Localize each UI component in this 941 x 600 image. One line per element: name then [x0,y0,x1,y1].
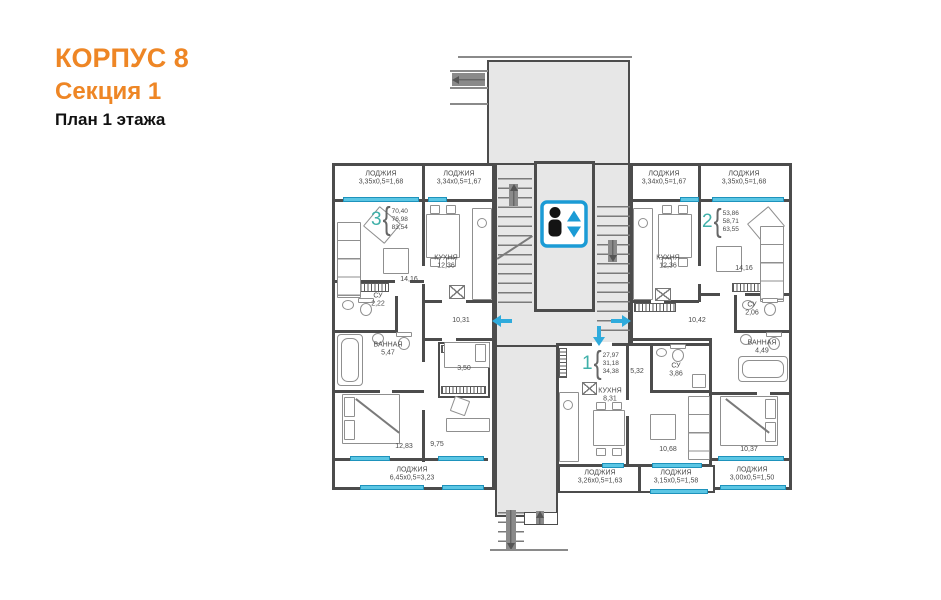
chair [662,205,672,214]
label-apt3-loggia-kitchen: ЛОДЖИЯ3,34х0,5=1,67 [437,171,482,188]
chair [612,448,622,456]
label-apt3-closet: 3,50 [457,365,471,373]
label-apt2-bath: ВАННАЯ4,49 [748,340,777,357]
window [442,485,484,490]
sofa [688,396,710,460]
label-apt1-loggia-living: ЛОДЖИЯ3,15х0,5=1,58 [654,470,699,487]
elevator-person-body [549,220,562,237]
sofa [337,222,361,298]
wall [626,345,629,400]
wall [422,302,425,362]
label-apt3-hall: 10,31 [452,317,470,325]
label-apt3-room: 9,75 [430,441,444,449]
window [650,489,708,494]
label-apt1-wc: СУ3,86 [669,363,683,380]
window [720,485,786,490]
brace-glyph [714,203,722,241]
apartment-areas: 27,97 31,18 34,38 [603,352,619,376]
stair-direction-arrow [509,184,518,206]
window [718,456,784,461]
label-apt3-bedroom: 12,83 [395,443,413,451]
wall [424,300,442,303]
wall [638,466,641,492]
washer [692,374,706,388]
area-value: 34,38 [603,368,619,376]
wall [650,345,653,392]
area-value: 58,71 [723,218,739,226]
window [602,463,624,468]
wall [712,392,757,395]
label-apt2-loggia-right: ЛОДЖИЯ3,35х0,5=1,68 [722,171,767,188]
wall [734,330,792,333]
entry-vestibule-top [487,60,630,165]
vent-shaft [655,288,671,301]
area-value: 70,40 [392,208,408,216]
apartment-2-tag: 2 53,86 58,71 63,55 [702,208,739,236]
wardrobe [441,386,486,394]
apartment-3-tag: 3 70,40 76,98 83,54 [371,206,408,234]
label-apt2-loggia-bottom: ЛОДЖИЯ3,00х0,5=1,50 [730,467,775,484]
wall [700,293,720,296]
floor-title: План 1 этажа [55,107,189,133]
area-value: 63,55 [723,226,739,234]
apartment-areas: 53,86 58,71 63,55 [723,210,739,234]
apartment-areas: 70,40 76,98 83,54 [392,208,408,232]
wall [650,390,709,393]
wall [335,330,397,333]
wall [770,392,792,395]
window [680,197,699,202]
wall [335,390,380,393]
label-apt2-living: 14,16 [735,265,753,273]
wall [698,202,701,266]
wall [424,338,442,341]
entrance-arrow-apartment-3 [492,314,512,328]
coffee-table [650,414,676,440]
wall [422,202,425,266]
label-apt2-wc: СУ2,06 [745,302,759,319]
area-value: 53,86 [723,210,739,218]
chair [446,205,456,214]
wardrobe [559,348,567,378]
elevator-person-icon [550,207,561,218]
window [350,456,390,461]
dining-table [593,410,625,446]
wall [734,295,737,332]
wall [422,410,425,462]
exit-step-arrow [536,511,544,524]
label-apt2-hall: 10,42 [688,317,706,325]
wall [422,166,425,202]
exit-direction-arrow [506,510,516,550]
sink [563,400,573,410]
chair [596,448,606,456]
window [360,485,424,490]
window [343,197,419,202]
bathtub-inner [742,360,784,378]
apartment-number: 1 [582,353,593,375]
label-apt2-kitchen: КУХНЯ12,36 [656,255,679,272]
apartment-number: 3 [371,209,382,231]
ground-line [490,549,568,551]
label-apt1-kitchen: КУХНЯ8,31 [598,388,621,405]
label-apt3-kitchen: КУХНЯ12,36 [434,255,457,272]
coffee-table [383,248,409,274]
label-apt2-bedroom: 10,37 [740,446,758,454]
ramp-line [450,70,488,72]
sink [656,348,667,357]
exit-corridor [495,345,558,517]
section-title: Секция 1 [55,76,189,107]
label-apt1-loggia-kitchen: ЛОДЖИЯ3,26х0,5=1,63 [578,470,623,487]
window [712,197,784,202]
dining-table [426,214,460,258]
sink [342,300,354,310]
area-value: 27,97 [603,352,619,360]
elevator-icon [540,200,588,248]
wardrobe [634,303,676,312]
toilet [672,349,684,362]
brace-glyph [383,201,391,239]
label-apt1-corridor: 5,32 [630,368,644,376]
label-apt2-loggia-kitchen: ЛОДЖИЯ3,34х0,5=1,67 [642,171,687,188]
label-apt1-living: 10,68 [659,446,677,454]
brace-glyph [594,345,602,383]
desk [446,418,490,432]
label-apt3-living: 14,16 [400,276,418,284]
ramp-exit-arrow-icon [452,73,485,86]
area-value: 83,54 [392,224,408,232]
chair [678,205,688,214]
wall [633,338,709,341]
entrance-arrow-apartment-2 [611,314,631,328]
apartment-1-tag: 1 27,97 31,18 34,38 [582,350,619,378]
area-value: 76,98 [392,216,408,224]
pillow [344,420,355,440]
toilet [360,303,372,316]
building-title: КОРПУС 8 [55,42,189,76]
apartment-number: 2 [702,211,713,233]
entrance-arrow-apartment-1 [592,326,606,346]
wall [456,338,495,341]
title-block: КОРПУС 8 Секция 1 План 1 этажа [55,42,189,132]
label-apt3-bath: ВАННАЯ5,47 [374,342,403,359]
roof-outline [458,56,632,58]
sofa [760,226,784,302]
label-apt3-wc: СУ2,22 [371,293,385,310]
label-apt3-loggia-bottom: ЛОДЖИЯ6,45х0,5=3,23 [390,467,435,484]
vent-shaft [582,382,597,395]
sink [477,218,487,228]
chair [430,205,440,214]
dining-table [658,214,692,258]
bathtub-inner [341,338,359,382]
window [428,197,447,202]
wall [626,416,629,465]
area-value: 31,18 [603,360,619,368]
toilet [764,303,776,316]
window [438,456,484,461]
pillow [475,344,486,362]
stair-direction-arrow [608,240,617,262]
vent-shaft [449,285,465,299]
wall [466,300,495,303]
pillow [344,397,355,417]
wall [392,390,424,393]
window [652,463,702,468]
floor-plan-page: КОРПУС 8 Секция 1 План 1 этажа [0,0,941,600]
label-apt3-loggia-left: ЛОДЖИЯ3,35х0,5=1,68 [359,171,404,188]
ramp-line [450,87,488,89]
wall [395,296,398,332]
ramp-line [450,103,488,105]
sink [638,218,648,228]
pillow [765,399,776,419]
